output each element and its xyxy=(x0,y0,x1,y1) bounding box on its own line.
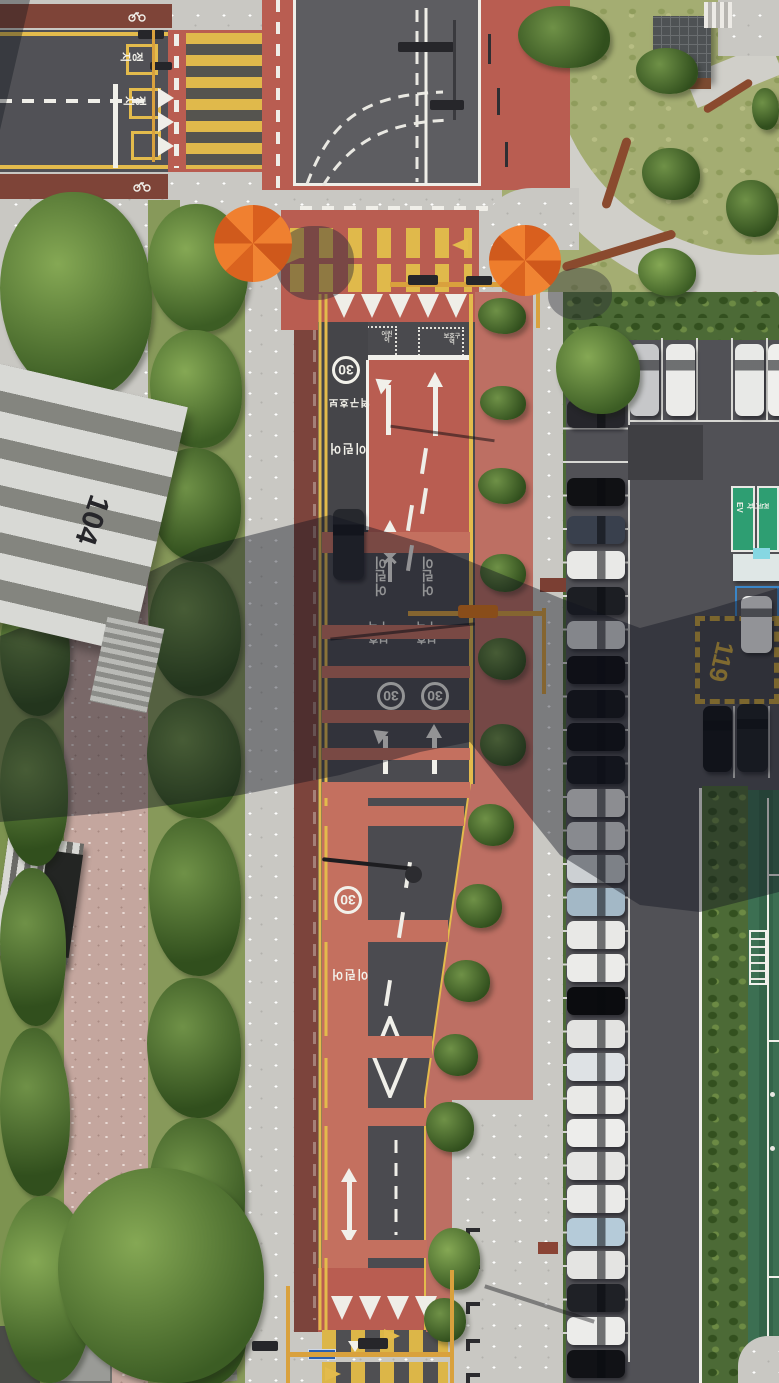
parked-car xyxy=(567,656,625,684)
tree-canopy xyxy=(424,1298,466,1342)
speed-bump-arrow xyxy=(452,238,468,252)
road-red-band xyxy=(322,748,470,760)
tree-canopy xyxy=(480,386,526,420)
road-red-band xyxy=(322,666,470,678)
tree-canopy xyxy=(0,718,68,866)
parked-car xyxy=(567,1020,625,1048)
tree-canopy xyxy=(147,698,241,818)
tree-canopy xyxy=(752,88,779,130)
parked-car xyxy=(741,596,772,653)
tree-canopy xyxy=(726,180,778,237)
umbrella-shadow xyxy=(548,268,612,320)
parked-car xyxy=(737,704,768,772)
parked-car xyxy=(567,822,625,850)
tree-canopy xyxy=(0,868,66,1026)
parked-car xyxy=(567,1053,625,1081)
tree-canopy xyxy=(434,1034,478,1076)
road-red-band xyxy=(322,1108,427,1126)
aerial-photo-scene: EV 전기차 119 정지 정지 xyxy=(0,0,779,1383)
parked-car xyxy=(567,1086,625,1114)
tree-canopy xyxy=(642,148,700,200)
parked-car xyxy=(567,921,625,949)
tree-canopy xyxy=(636,48,698,94)
road-red-band xyxy=(322,806,464,826)
parked-car xyxy=(567,690,625,718)
parked-car xyxy=(567,587,625,615)
traffic-signal-head xyxy=(430,100,464,110)
yield-tooth xyxy=(158,112,174,132)
orange-umbrella xyxy=(489,225,561,296)
parked-car xyxy=(333,509,364,580)
tree-canopy xyxy=(58,1168,264,1383)
yield-tooth xyxy=(158,88,174,108)
signal-pole xyxy=(286,1286,290,1383)
tree-canopy xyxy=(149,818,241,976)
parked-car xyxy=(567,621,625,649)
parked-car xyxy=(567,723,625,751)
parked-car xyxy=(768,344,779,416)
tree-canopy xyxy=(147,978,241,1118)
building-number: 104 xyxy=(106,475,124,528)
road-red-band xyxy=(322,1036,432,1058)
parked-car xyxy=(567,756,625,784)
road-red-band xyxy=(322,1240,427,1258)
signal-pole xyxy=(450,1270,454,1383)
yield-tooth xyxy=(158,136,174,156)
parked-car xyxy=(567,1251,625,1279)
tree-canopy xyxy=(444,960,490,1002)
parked-car xyxy=(567,987,625,1015)
lane-dash xyxy=(420,448,428,474)
parked-car xyxy=(567,551,625,579)
lane-dash xyxy=(384,980,392,1006)
plaza-pole xyxy=(488,34,491,64)
speed-bump-arrow xyxy=(325,1367,341,1381)
tree-canopy xyxy=(456,884,502,928)
traffic-signal-head xyxy=(408,275,438,285)
signal-pole xyxy=(542,608,546,694)
yield-tooth xyxy=(445,294,467,318)
parked-car xyxy=(567,1350,625,1378)
parked-car xyxy=(567,954,625,982)
orange-umbrella xyxy=(214,205,292,282)
yield-tooth xyxy=(417,294,439,318)
lane-dash xyxy=(420,488,428,514)
signal-orange-housing xyxy=(458,605,498,618)
parked-car xyxy=(567,855,625,883)
tree-canopy xyxy=(426,1102,474,1152)
tree-canopy xyxy=(468,804,514,846)
tree-canopy xyxy=(480,554,526,592)
traffic-signal-head xyxy=(138,30,164,39)
tree-canopy xyxy=(480,724,526,766)
tree-canopy xyxy=(518,6,610,68)
road-red-band xyxy=(322,920,448,942)
parked-car xyxy=(703,706,732,772)
yield-tooth xyxy=(387,1296,409,1320)
road-red-band xyxy=(322,782,470,798)
yield-tooth xyxy=(389,294,411,318)
yield-tooth xyxy=(361,294,383,318)
traffic-signal-head xyxy=(358,1338,388,1349)
lane-dash xyxy=(406,505,414,531)
tree-canopy xyxy=(638,248,696,296)
tree-canopy xyxy=(478,638,526,680)
parked-car xyxy=(567,516,625,544)
traffic-signal-head xyxy=(398,42,454,52)
parked-car xyxy=(567,1284,625,1312)
traffic-signal-head xyxy=(466,276,492,285)
parked-car xyxy=(666,344,695,416)
street-lamp-head xyxy=(405,866,422,883)
yield-tooth xyxy=(359,1296,381,1320)
parked-car xyxy=(567,888,625,916)
parked-car xyxy=(567,1218,625,1246)
yield-tooth xyxy=(333,294,355,318)
tree-canopy xyxy=(0,192,152,398)
parked-car xyxy=(567,1119,625,1147)
tree-canopy xyxy=(478,468,526,504)
tree-canopy xyxy=(428,1228,480,1290)
parked-car xyxy=(567,478,625,506)
parked-car xyxy=(567,1152,625,1180)
yield-tooth xyxy=(331,1296,353,1320)
tree-canopy xyxy=(478,298,526,334)
signal-mast-arm xyxy=(290,1352,452,1357)
tree-canopy xyxy=(0,1028,70,1196)
road-red-band xyxy=(322,710,470,723)
plaza-pole xyxy=(505,142,508,167)
signal-pole xyxy=(152,30,155,162)
plaza-pole xyxy=(497,88,500,115)
parked-car xyxy=(567,789,625,817)
traffic-signal-head xyxy=(252,1341,278,1351)
parked-car xyxy=(567,1317,625,1345)
parked-car xyxy=(567,1185,625,1213)
parked-car xyxy=(735,344,764,416)
